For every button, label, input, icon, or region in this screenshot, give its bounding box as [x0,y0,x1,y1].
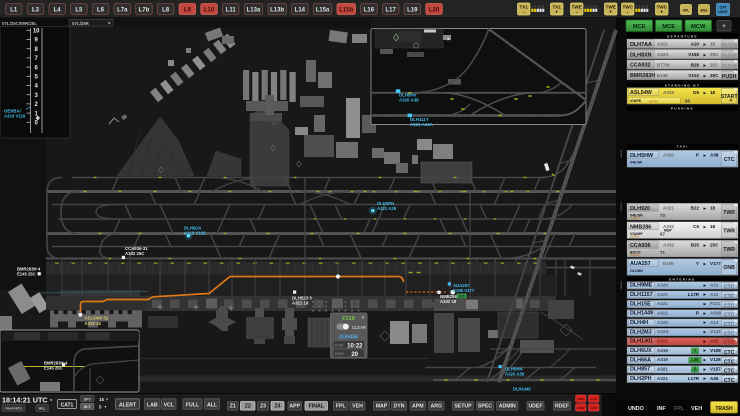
svg-text:18: 18 [710,224,716,229]
svg-text:PUSH: PUSH [335,352,345,356]
svg-text:L9: L9 [184,8,192,14]
svg-text:×: × [108,21,111,26]
svg-text:Z1: Z1 [230,404,236,410]
svg-text:ENTERING: ENTERING [669,278,695,282]
svg-text:DLH6UX: DLH6UX [630,348,652,354]
svg-text:A321: A321 [657,376,668,381]
svg-text:ARG: ARG [430,404,442,410]
svg-text:L7b: L7b [139,8,150,14]
svg-text:V155: V155 [688,52,699,57]
svg-text:A332 25C: A332 25C [125,251,144,256]
svg-text:71: 71 [660,250,665,255]
svg-text:VEH: VEH [352,404,363,410]
svg-text:18:14:21 UTC: 18:14:21 UTC [2,395,48,404]
svg-text:A21: A21 [710,283,719,288]
svg-text:ALL: ALL [39,407,46,411]
svg-text:E145 25C: E145 25C [17,272,36,277]
svg-text:×: × [447,37,450,43]
svg-text:C5: C5 [693,224,699,229]
svg-text:A13: A13 [710,320,719,325]
svg-text:25C: 25C [710,52,719,57]
svg-text:SPV: SPV [84,397,92,401]
svg-text:CTC: CTC [724,378,735,384]
svg-text:L13b: L13b [270,8,284,14]
svg-text:PUSH: PUSH [722,53,737,59]
svg-text:DLH15E: DLH15E [630,301,651,307]
svg-text:CTC: CTC [724,359,735,365]
svg-text:A38: A38 [710,153,719,158]
svg-text:20: 20 [351,352,358,358]
svg-text:V123: V123 [710,329,721,334]
svg-text:25C: 25C [710,243,719,248]
svg-text:CAT: CAT [720,6,728,10]
svg-text:HI-T: HI-T [84,405,92,409]
svg-text:CTC: CTC [724,322,735,328]
svg-text:+: + [555,10,558,16]
svg-text:FULL: FULL [186,403,200,409]
svg-text:L3: L3 [32,8,40,14]
svg-text:ARTIA: ARTIA [649,99,659,103]
svg-text:TWR: TWR [723,210,735,216]
svg-text:86: 86 [685,99,691,104]
svg-text:ALL: ALL [207,403,218,409]
svg-text:B25: B25 [691,243,700,248]
svg-text:L19: L19 [407,8,418,14]
svg-text:L17R: L17R [688,292,700,297]
svg-text:CMM2: CMM2 [577,406,585,410]
svg-text:L20: L20 [429,8,440,14]
svg-text:A320 A38: A320 A38 [399,98,419,103]
svg-text:D5: D5 [693,90,699,95]
svg-text:DLH9ME: DLH9ME [630,283,653,289]
svg-text:×: × [362,315,365,320]
svg-text:VIAFE: VIAFE [630,99,642,103]
svg-text:A320: A320 [657,320,668,325]
svg-text:LIGHT: LIGHT [718,10,728,14]
svg-text:Z4: Z4 [274,404,280,410]
svg-text:A321: A321 [657,301,668,306]
svg-text:+: + [660,10,663,16]
svg-text:PUSH: PUSH [722,74,737,80]
svg-text:25C: 25C [710,63,719,68]
svg-text:A2E0: A2E0 [590,406,597,410]
svg-text:P: P [696,153,699,158]
svg-text:INF: INF [657,406,666,412]
svg-text:E145 25C: E145 25C [44,366,63,371]
svg-text:A52: A52 [710,338,719,343]
svg-text:DLH1449: DLH1449 [513,387,531,392]
svg-text:ASDLA: ASDLA [630,235,639,239]
svg-text:DLH1301: DLH1301 [630,339,653,345]
svg-text:LAB: LAB [147,403,158,409]
svg-text:L15b: L15b [339,8,353,14]
svg-text:APM: APM [412,404,424,410]
svg-text:A320 A38: A320 A38 [505,372,525,377]
svg-text:+: + [722,24,726,30]
svg-text:10: 10 [33,29,40,35]
svg-text:CCA936: CCA936 [630,243,651,249]
svg-text:L8: L8 [162,8,170,14]
svg-text:FRAPORTS: FRAPORTS [5,407,22,411]
svg-text:L4: L4 [54,8,62,14]
svg-text:CMM6: CMM6 [577,397,585,401]
svg-text:ALERT: ALERT [119,403,137,409]
svg-text:B28: B28 [691,63,700,68]
svg-text:A20: A20 [691,42,700,47]
svg-text:L6: L6 [97,8,105,14]
svg-text:TWR: TWR [723,247,735,253]
svg-text:A26: A26 [710,376,719,381]
svg-text:TAXI: TAXI [676,144,688,148]
svg-text:TRASH: TRASH [715,406,733,412]
svg-text:FPL: FPL [336,404,347,410]
svg-text:MSP: MSP [664,229,672,233]
svg-text:CTC: CTC [724,341,735,347]
svg-text:▾: ▾ [105,404,107,409]
svg-text:AASLA: AASLA [630,253,639,257]
svg-text:L55: L55 [691,357,699,362]
svg-text:DLH7AA: DLH7AA [630,42,652,48]
svg-text:STANDING BY: STANDING BY [665,83,700,87]
svg-text:A320: A320 [663,153,674,158]
svg-text:A321: A321 [657,366,668,371]
svg-text:A332 18: A332 18 [440,299,457,304]
svg-text:V157: V157 [710,366,721,371]
svg-text:A319: A319 [663,90,674,95]
svg-text:PUSH: PUSH [722,43,737,49]
svg-text:L15a: L15a [316,8,330,14]
svg-text:PUSHING: PUSHING [671,107,694,111]
svg-text:15: 15 [99,397,105,402]
svg-text:70: 70 [660,213,665,218]
svg-text:CCA932: CCA932 [630,63,651,69]
svg-text:5: 5 [99,405,102,410]
svg-text:L17R: L17R [688,376,700,381]
svg-text:B22: B22 [691,206,700,211]
svg-text:DLH4H: DLH4H [630,320,648,326]
svg-text:TWR: TWR [723,228,735,234]
svg-text:A508: A508 [710,310,721,315]
svg-text:AUH456: AUH456 [339,335,358,341]
svg-text:A319 V116: A319 V116 [4,114,26,119]
svg-text:MCW: MCW [691,24,706,30]
svg-text:BMR283H: BMR283H [630,73,655,79]
svg-text:SPEC: SPEC [478,404,492,410]
svg-text:L11: L11 [226,8,237,14]
svg-text:DLH857: DLH857 [630,367,650,373]
svg-text:A332: A332 [663,243,674,248]
svg-text:V102: V102 [688,73,699,78]
svg-text:Y: Y [696,261,699,266]
svg-text:DLH1449: DLH1449 [630,311,653,317]
svg-text:L5: L5 [75,8,83,14]
svg-text:AASLA: AASLA [630,216,639,220]
svg-text:25C: 25C [710,73,719,78]
svg-text:07L/25R: 07L/25R [72,21,90,26]
svg-text:DLH8XN: DLH8XN [630,52,652,58]
svg-text:04E BF: 04E BF [630,161,643,165]
svg-text:MAP: MAP [376,404,388,410]
svg-text:CTC: CTC [724,303,735,309]
svg-text:V126: V126 [710,357,721,362]
svg-text:A321: A321 [657,338,668,343]
svg-text:A320: A320 [657,283,668,288]
svg-text:DYN: DYN [394,404,405,410]
svg-text:ASL54W: ASL54W [630,90,653,96]
svg-text:BSS: BSS [701,9,709,13]
svg-text:A32A: A32A [657,52,669,57]
svg-text:F221: F221 [710,301,721,306]
svg-text:18: 18 [710,42,716,47]
svg-text:L17: L17 [385,8,396,14]
svg-text:DLH2MJ: DLH2MJ [630,329,652,335]
svg-text:A11: A11 [710,292,719,297]
svg-text:A321: A321 [657,310,668,315]
svg-text:E195: E195 [663,261,674,266]
svg-text:A321 18: A321 18 [292,301,309,306]
svg-text:SETUP: SETUP [454,404,472,410]
svg-text:SPL: SPL [683,9,690,13]
svg-text:07L/25C/09R/25L: 07L/25C/09R/25L [2,21,37,26]
svg-text:18: 18 [710,90,716,95]
svg-text:L13a: L13a [247,8,261,14]
svg-text:DLH66A: DLH66A [630,357,651,363]
svg-text:A321 A34A: A321 A34A [410,122,434,127]
svg-text:ONB: ONB [723,265,735,271]
svg-text:FINAL: FINAL [309,404,325,410]
svg-text:Z2: Z2 [245,404,251,410]
svg-text:L10: L10 [204,8,215,14]
svg-text:CTC: CTC [724,331,735,337]
svg-text:T: T [694,348,697,353]
svg-text:18: 18 [710,206,716,211]
svg-text:EOBT: EOBT [335,344,344,348]
svg-text:FPL: FPL [674,406,685,412]
svg-text:E145: E145 [657,73,668,78]
svg-text:UNDO: UNDO [628,406,644,412]
svg-text:CAT1: CAT1 [61,403,74,409]
svg-text:DLH920: DLH920 [630,206,650,212]
svg-text:V109: V109 [710,348,721,353]
svg-text:▾: ▾ [106,396,108,401]
svg-text:UDEF: UDEF [528,404,542,410]
svg-text:A319: A319 [657,348,668,353]
svg-text:MCE: MCE [633,24,646,30]
svg-text:A319: A319 [657,357,668,362]
svg-text:A32A: A32A [657,329,669,334]
svg-text:L16: L16 [364,8,375,14]
svg-text:APP: APP [289,404,300,410]
svg-text:CTC: CTC [724,294,735,300]
svg-text:P: P [694,366,697,371]
svg-text:A319 18: A319 18 [85,321,102,326]
svg-text:CTC: CTC [724,157,735,163]
svg-text:F219: F219 [342,316,354,322]
svg-text:NMB286: NMB286 [630,224,651,230]
svg-text:RDEF: RDEF [555,404,569,410]
svg-text:CTC: CTC [724,350,735,356]
svg-text:ALA2: ALA2 [590,397,597,401]
svg-text:B77W: B77W [657,63,670,68]
svg-text:DLH5HW: DLH5HW [630,153,654,159]
svg-text:ADMIN: ADMIN [499,404,516,410]
svg-text:AUA257: AUA257 [630,261,651,267]
svg-text:F35: F35 [458,295,464,299]
svg-text:PUSH: PUSH [722,64,737,70]
svg-text:A321: A321 [657,42,668,47]
svg-text:A321: A321 [657,292,668,297]
svg-text:MCE: MCE [662,24,675,30]
svg-text:10:22: 10:22 [347,343,363,349]
svg-text:CLEAR: CLEAR [352,325,366,330]
svg-text:L7a: L7a [117,8,128,14]
svg-text:Z3: Z3 [260,404,266,410]
svg-text:+: + [609,10,612,16]
svg-text:L1: L1 [10,8,18,14]
svg-text:OLUNN: OLUNN [630,269,643,273]
svg-text:L14: L14 [295,8,306,14]
svg-text:VEH: VEH [691,406,702,412]
svg-text:DEPARTURE: DEPARTURE [667,34,698,38]
svg-text:E195 V177: E195 V177 [453,288,475,293]
svg-text:CTC: CTC [724,285,735,291]
svg-text:A321: A321 [663,206,674,211]
svg-text:DLH1157: DLH1157 [630,292,653,298]
svg-text:A321 A26: A321 A26 [377,206,397,211]
svg-text:P: P [696,310,699,315]
svg-text:CTC: CTC [724,313,735,319]
svg-text:V177: V177 [710,261,721,266]
svg-text:VCL: VCL [164,403,175,409]
svg-text:CTC: CTC [724,369,735,375]
svg-text:DLH2PH: DLH2PH [630,376,652,382]
